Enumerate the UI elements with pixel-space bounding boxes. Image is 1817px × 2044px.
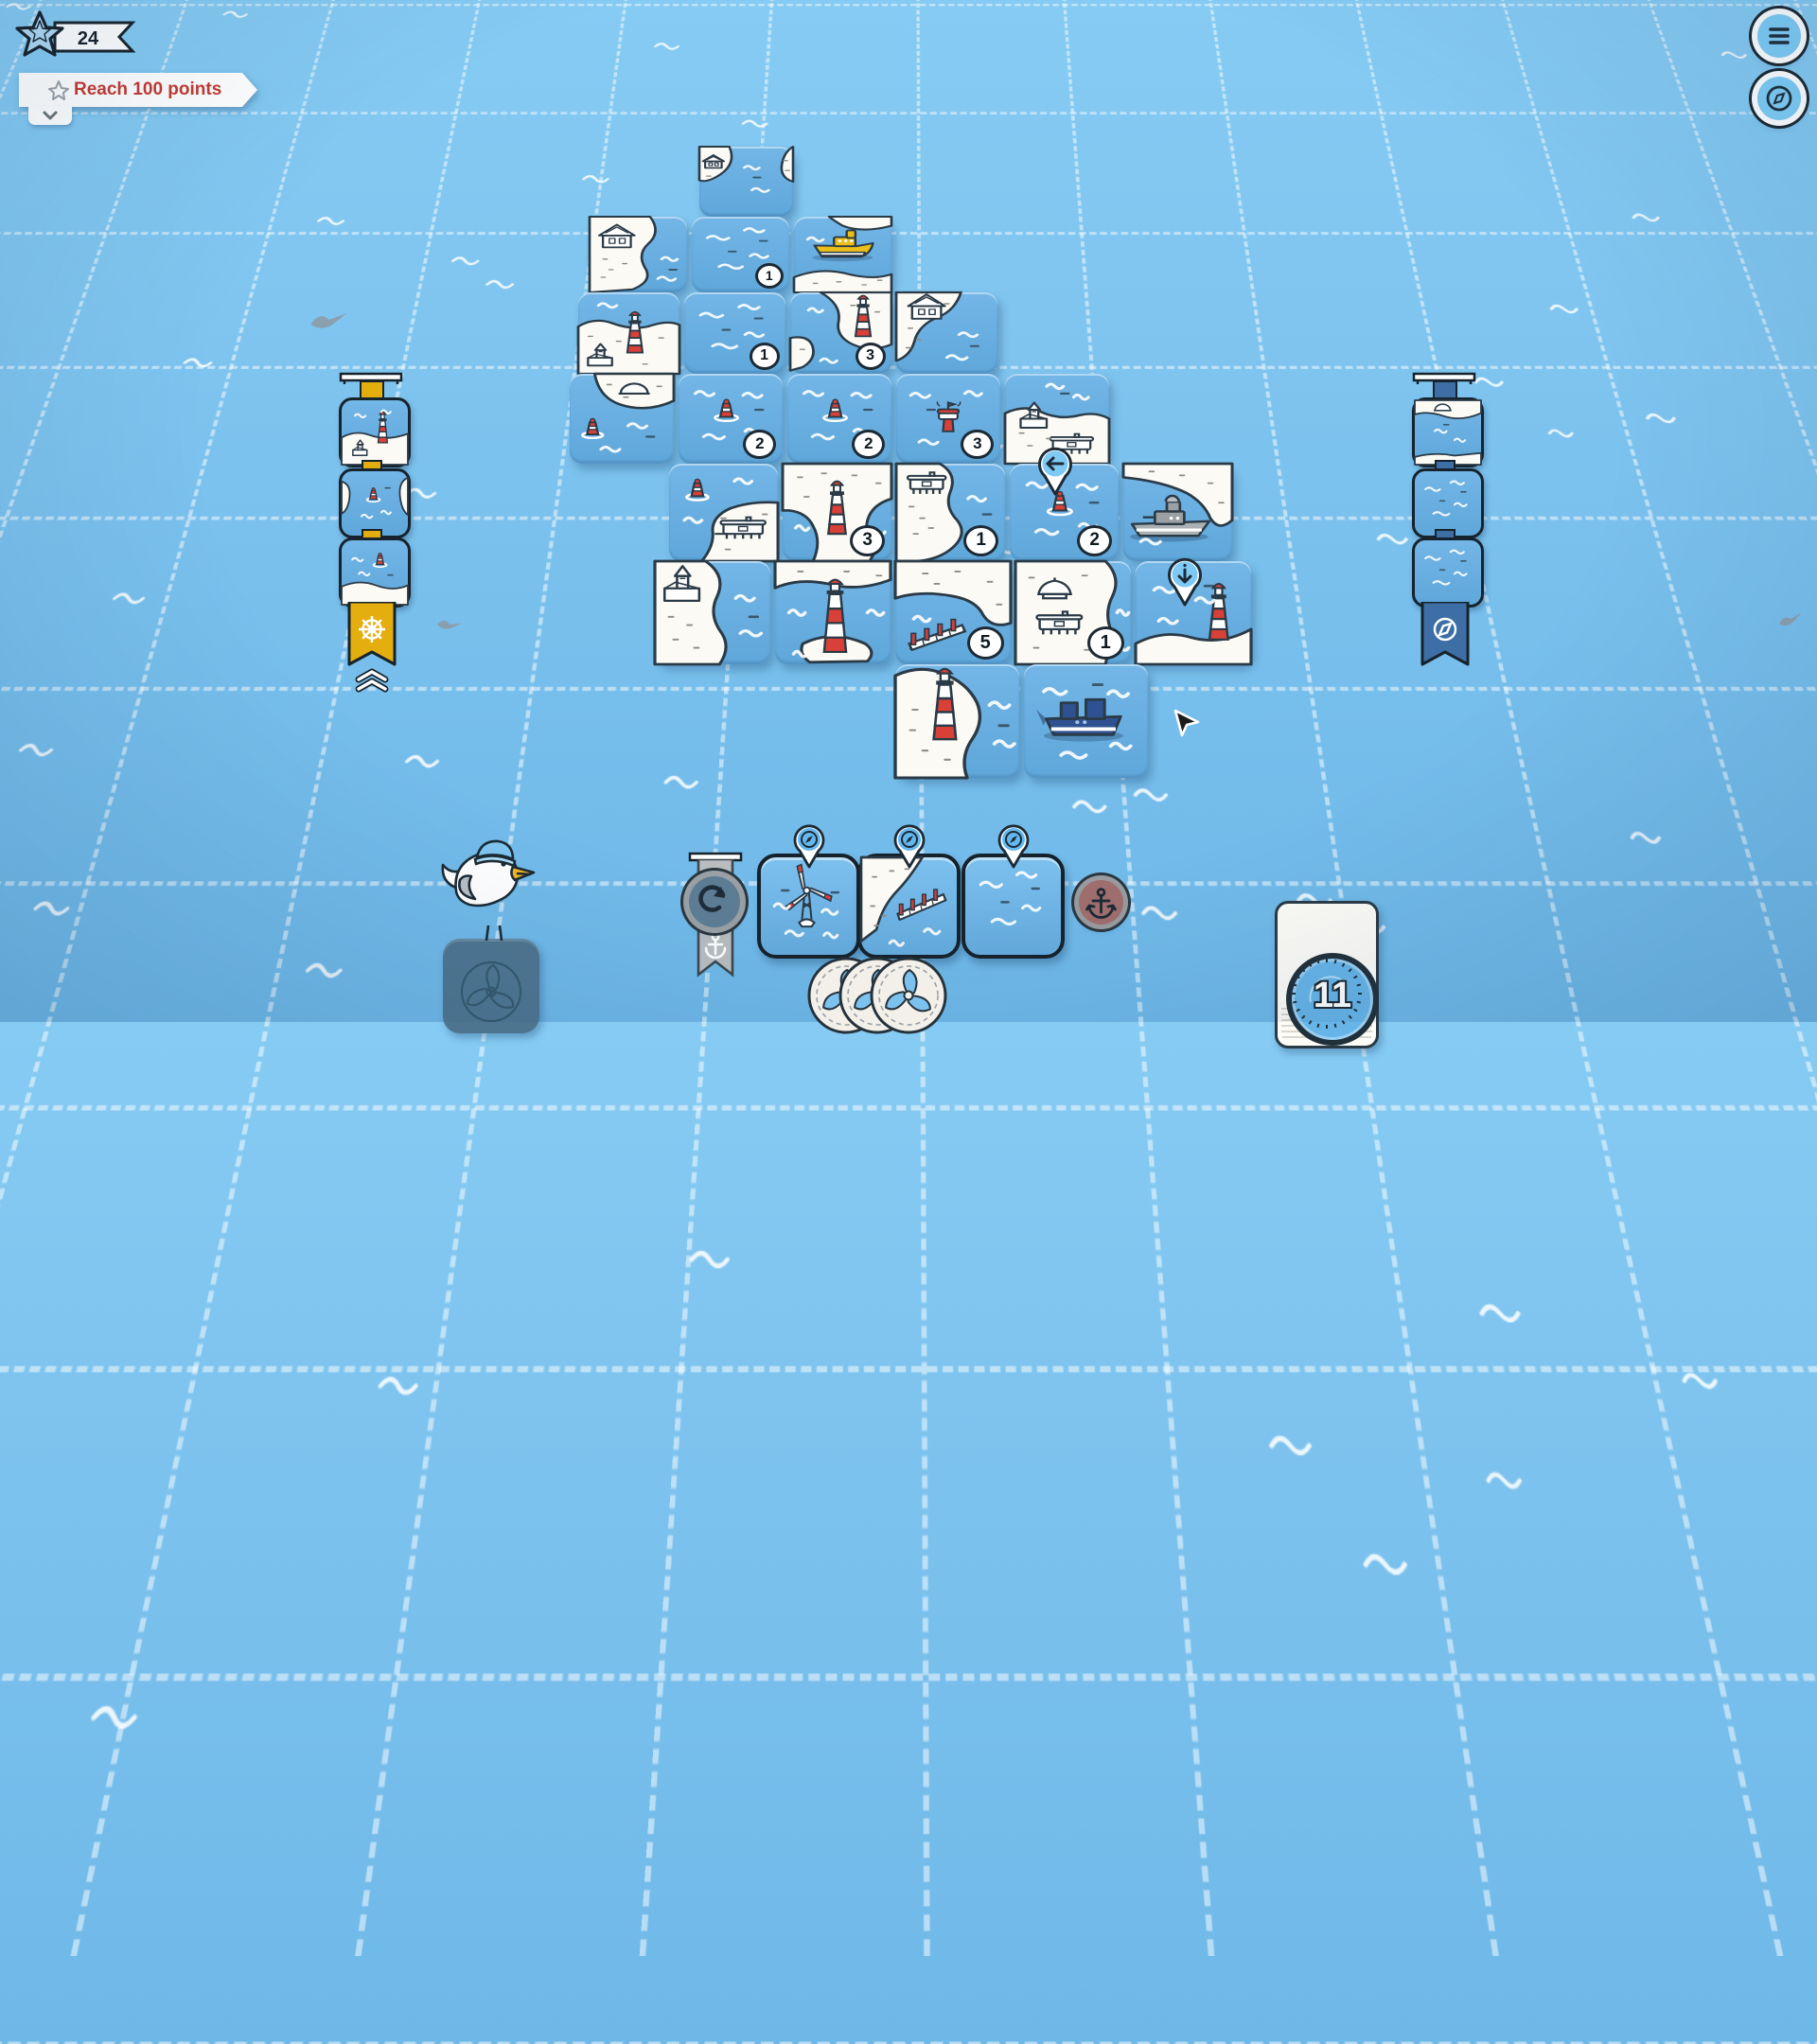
card-compass-badge — [995, 819, 1032, 869]
sea-wave-squiggle — [1359, 1548, 1450, 1576]
tile-score-badge: 1 — [755, 263, 784, 289]
compass-button[interactable] — [1757, 77, 1801, 120]
quest-stack-tile-stack_dome_top[interactable] — [1412, 397, 1484, 467]
grid-line — [1421, 0, 1817, 1956]
grid-line — [0, 0, 286, 1956]
quest-ribbon-blue — [1420, 602, 1473, 674]
board-tile-island_house_L[interactable] — [590, 217, 687, 292]
mascot-base-card — [443, 939, 539, 1033]
board-tile-water_lh_pin[interactable] — [1136, 561, 1251, 664]
deck-count: 11 — [1292, 976, 1373, 1016]
grid-line — [0, 0, 33, 1956]
tile-score-badge: 3 — [856, 343, 886, 370]
propeller-sketch-icon — [443, 939, 539, 1033]
ship-wheel-icon — [359, 616, 385, 643]
grid-line — [1042, 0, 1214, 1956]
chevron-down-icon — [44, 113, 56, 118]
sea-wave-squiggle — [103, 589, 185, 604]
sea-wave-squiggle — [1628, 827, 1690, 844]
board-tile-boat_yellow[interactable] — [794, 217, 891, 292]
tile-score-badge: 1 — [1087, 626, 1124, 660]
grid-line — [1801, 0, 1817, 1956]
grid-line — [0, 2041, 1817, 2044]
board-tile-island_lh_big[interactable] — [775, 561, 891, 664]
tile-deck: 11 — [1275, 901, 1379, 1048]
sea-wave-squiggle — [645, 41, 711, 50]
tile-score-badge: 3 — [850, 525, 885, 556]
sea-wave-squiggle — [1678, 1366, 1751, 1391]
quest-stack-tile-water[interactable] — [1412, 468, 1484, 538]
board-tile-water_tower[interactable]: 3 — [896, 374, 1000, 464]
sea-wave-squiggle — [0, 898, 136, 916]
undo-button[interactable] — [689, 876, 740, 927]
grid-line — [0, 232, 1817, 235]
sea-wave-squiggle — [1127, 784, 1204, 802]
hand-card-water[interactable] — [961, 854, 1065, 959]
sea-wave-squiggle — [1623, 411, 1723, 424]
sea-wave-squiggle — [1484, 1464, 1556, 1489]
grid-line — [1674, 0, 1817, 1956]
board-tile-island_U_lh[interactable]: 3 — [783, 464, 891, 561]
sea-wave-squiggle — [1108, 902, 1243, 920]
grid-line — [0, 1366, 1817, 1372]
propeller-coin — [869, 956, 948, 1035]
board-tile-island_church[interactable] — [655, 561, 770, 664]
quest-label: Reach 100 points — [74, 79, 221, 100]
board-tile-island_channel_lh[interactable]: 3 — [790, 292, 891, 374]
tile-score-badge: 1 — [963, 525, 998, 556]
board-tile-island_bridge[interactable]: 5 — [895, 561, 1011, 664]
board-tile-water_shore_sides_house[interactable] — [699, 147, 793, 217]
card-compass-badge — [790, 819, 828, 869]
tile-score-badge: 5 — [967, 626, 1004, 660]
sea-wave-squiggle — [371, 750, 503, 766]
score-value: 24 — [61, 28, 115, 50]
board-tile-water_buoy[interactable]: 2 — [679, 374, 783, 464]
tile-score-badge: 2 — [1077, 525, 1112, 556]
hand-card-water_turbine[interactable] — [757, 854, 860, 959]
sea-wave-squiggle — [473, 277, 553, 289]
menu-button[interactable] — [1757, 14, 1801, 58]
sea-wave-squiggle — [151, 356, 272, 368]
board-tile-island_dome_buoy[interactable] — [570, 374, 674, 464]
board-tile-water_buoy_dock[interactable] — [669, 464, 778, 561]
grid-line — [0, 0, 413, 1956]
sea-wave-squiggle — [5, 740, 97, 756]
double-chevron-up-icon — [359, 672, 385, 689]
seagull-mascot — [433, 835, 556, 944]
quest-stack-tile-stack_buoy_sides[interactable] — [339, 468, 411, 538]
sea-wave-squiggle — [1546, 426, 1598, 439]
hand-card-island_bridge_card[interactable] — [857, 854, 961, 959]
anchor-icon — [1079, 880, 1123, 925]
board-tile-island_lh_xl[interactable] — [895, 664, 1019, 778]
quest-stack-tile-stack_lh_church[interactable] — [339, 397, 411, 467]
board-tile-island_house_TL[interactable] — [896, 292, 997, 374]
sea-wave-squiggle — [307, 214, 380, 224]
direction-pin-down-arrow[interactable] — [1164, 552, 1206, 611]
board-tile-island_lh_church[interactable] — [578, 292, 679, 374]
sea-wave-squiggle — [1546, 302, 1607, 313]
quest-expand-tab[interactable] — [28, 106, 72, 125]
card-compass-badge — [891, 819, 928, 869]
sea-wave-squiggle — [41, 1699, 228, 1728]
deck-counter-dial: 11 — [1286, 953, 1379, 1046]
board-tile-island_twodocks[interactable]: 1 — [1015, 561, 1131, 664]
board-tile-ship_blue[interactable] — [1024, 664, 1148, 778]
score-flag: 24 — [11, 8, 153, 64]
sea-wave-squiggle — [1438, 1299, 1597, 1323]
mouse-cursor — [1172, 708, 1204, 740]
board-tile-water[interactable]: 1 — [684, 292, 785, 374]
quest-stack-tile-stack_turbine[interactable] — [1412, 537, 1484, 608]
sea-wave-squiggle — [429, 254, 529, 265]
sea-wave-squiggle — [1610, 211, 1706, 221]
board-tile-water[interactable]: 1 — [692, 217, 789, 292]
grid-line — [0, 1105, 1817, 1111]
sea-wave-squiggle — [648, 1245, 806, 1268]
quest-ribbon-yellow — [346, 602, 399, 696]
board-tile-water_buoy[interactable]: 2 — [787, 374, 891, 464]
board-tile-ship_gray[interactable] — [1123, 464, 1232, 561]
tile-score-badge: 1 — [750, 343, 780, 370]
direction-pin-left-arrow[interactable] — [1034, 441, 1076, 501]
grid-line — [0, 112, 1817, 115]
compass-rose-icon — [1757, 77, 1801, 120]
sea-wave-squiggle — [208, 9, 284, 17]
sea-wave-squiggle — [377, 1370, 455, 1395]
sea-wave-squiggle — [637, 771, 756, 788]
quest-stack-tile-stack_buoy_shore[interactable] — [339, 537, 411, 608]
anchor-button[interactable] — [1079, 880, 1123, 925]
grid-line — [0, 4, 1817, 6]
hamburger-menu-icon — [1757, 14, 1801, 58]
grid-line — [0, 1674, 1817, 1682]
board-tile-water_buoy[interactable]: 2 — [1010, 464, 1119, 561]
board-tile-island_dock_L[interactable]: 1 — [896, 464, 1005, 561]
sea-wave-squiggle — [277, 959, 405, 978]
seagull-silhouette — [309, 308, 352, 338]
sea-wave-squiggle — [715, 117, 818, 127]
sea-wave-squiggle — [1227, 1430, 1389, 1455]
sea-wave-squiggle — [558, 172, 657, 183]
undo-arrow-icon — [689, 876, 740, 927]
